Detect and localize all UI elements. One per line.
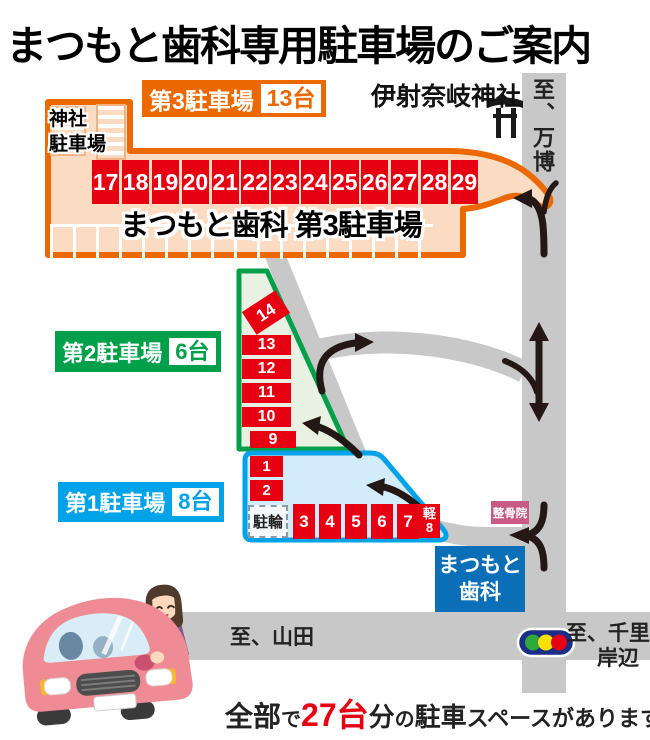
lot3-capacity-badge: 13台: [261, 84, 322, 113]
shrine-parking-line1: 神社: [49, 109, 87, 130]
parking-space-2: 2: [250, 480, 283, 501]
lot3-label-name: 第3駐車場: [142, 82, 261, 116]
parking-space-28: 28: [421, 160, 448, 204]
lot3-label: 第3駐車場 13台: [142, 80, 326, 117]
road-label-north: 至、万博: [526, 78, 558, 174]
footer-part4: 分: [369, 702, 395, 732]
parking-space-7: 7: [397, 504, 419, 539]
lot3-name-text: まつもと歯科 第3駐車場: [95, 202, 447, 244]
car-illustration: [16, 583, 195, 729]
footer-part1: 全部: [225, 701, 281, 732]
parking-space-6: 6: [371, 504, 393, 539]
footer-part2: で: [281, 709, 301, 731]
parking-space-12: 12: [242, 359, 291, 379]
parking-space-kei-8: 軽 8: [419, 504, 440, 538]
page-title: まつもと歯科専用駐車場のご案内: [6, 12, 650, 72]
parking-space-26: 26: [361, 160, 388, 204]
parking-space-21: 21: [212, 160, 239, 204]
footer-count: 27台: [301, 697, 369, 733]
parking-space-23: 23: [271, 160, 298, 204]
lot1-space-row: 34567: [293, 504, 419, 539]
parking-space-25: 25: [331, 160, 358, 204]
shrine-parking-label: 神社 駐車場: [49, 108, 106, 157]
parking-space-3: 3: [293, 504, 315, 539]
lot2-capacity-badge: 6台: [169, 338, 215, 366]
parking-space-1: 1: [250, 456, 283, 477]
lot3-space-row: 17181920212223242526272829: [92, 160, 478, 204]
parking-space-24: 24: [301, 160, 328, 204]
parking-space-5: 5: [345, 504, 367, 539]
clinic-name-line1: まつもと: [438, 552, 522, 579]
shrine-parking-line2: 駐車場: [49, 134, 106, 155]
clinic-name-line2: 歯科: [459, 579, 501, 606]
road-label-east-line2: 岸辺: [597, 642, 639, 672]
parking-space-27: 27: [391, 160, 418, 204]
total-spaces-note: 全部で27台分の駐車スペースがあります: [225, 690, 649, 736]
shrine-name: 伊射奈岐神社: [371, 77, 521, 113]
parking-space-22: 22: [241, 160, 268, 204]
parking-space-11: 11: [242, 383, 291, 403]
kei-number: 8: [426, 521, 433, 535]
parking-space-29: 29: [451, 160, 478, 204]
lot1-label-name: 第1駐車場: [58, 486, 172, 518]
lot2-label-name: 第2駐車場: [55, 336, 169, 368]
lot2-space-column: 131211109: [242, 335, 296, 452]
parking-space-10: 10: [242, 407, 291, 427]
lot1-label: 第1駐車場 8台: [58, 482, 224, 522]
parking-space-9: 9: [250, 431, 296, 448]
clinic-box: まつもと 歯科: [435, 546, 525, 612]
parking-space-17: 17: [92, 160, 119, 204]
footer-part6: 駐車: [415, 702, 467, 732]
kei-label: 軽: [423, 507, 436, 521]
footer-part5: の: [395, 709, 415, 731]
parking-space-13: 13: [242, 335, 291, 355]
road-label-west: 至、山田: [230, 621, 314, 651]
parking-space-20: 20: [182, 160, 209, 204]
parking-space-4: 4: [319, 504, 341, 539]
lot1-capacity-badge: 8台: [172, 488, 218, 516]
parking-guide-poster: まつもと歯科専用駐車場のご案内 第3駐車場 13台 神社 駐車場 1718192…: [0, 0, 650, 740]
parking-space-18: 18: [122, 160, 149, 204]
footer-part7: スペースがあります: [467, 706, 650, 731]
osteopath-box: 整骨院: [491, 501, 529, 524]
parking-space-19: 19: [152, 160, 179, 204]
lot2-label: 第2駐車場 6台: [55, 331, 221, 372]
bicycle-parking-box: 駐輪: [248, 505, 288, 538]
